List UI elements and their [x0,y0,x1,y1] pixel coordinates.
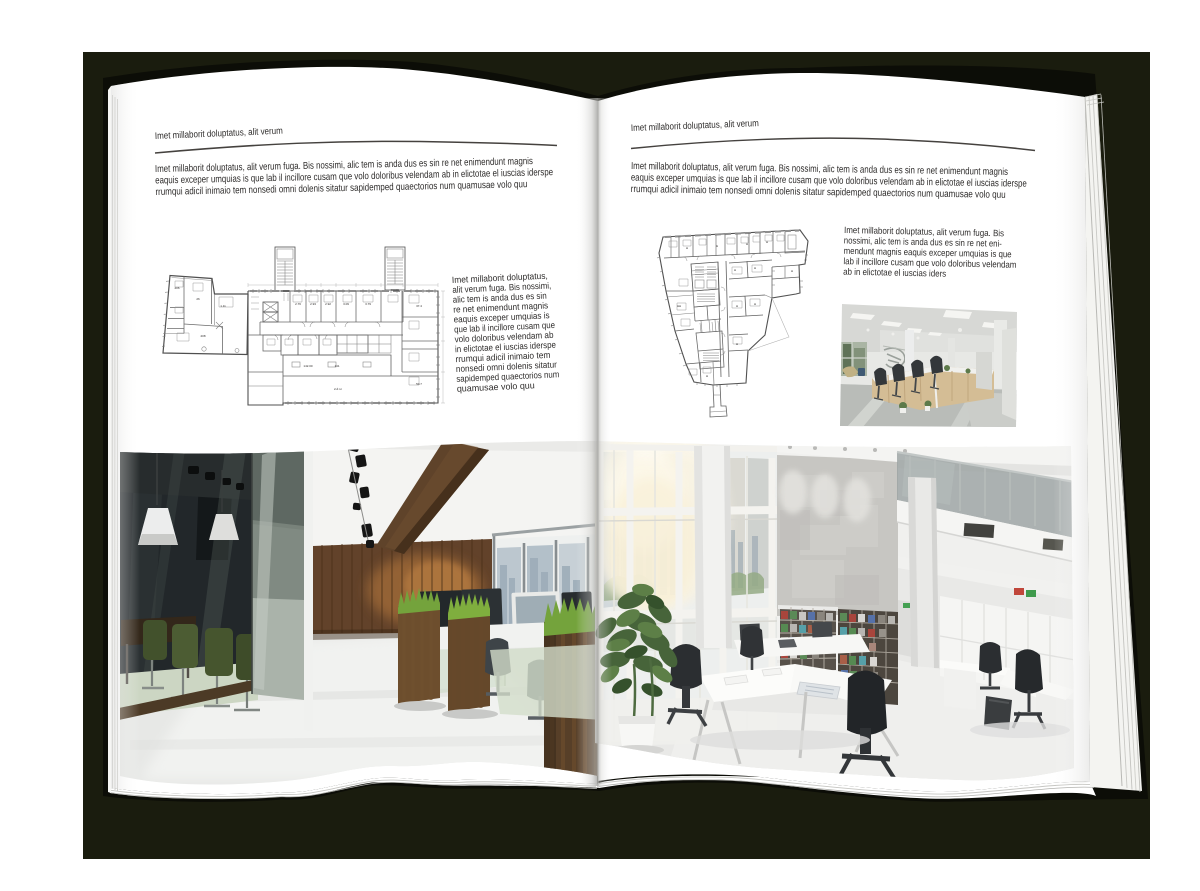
svg-text:26: 26 [196,297,200,301]
svg-text:141: 141 [334,364,339,368]
svg-text:142.00: 142.00 [303,364,313,368]
svg-text:Δ: Δ [686,246,688,250]
svg-text:Δ: Δ [746,242,748,246]
svg-text:3.09: 3.09 [343,302,349,306]
svg-text:Δ: Δ [754,302,756,306]
svg-text:37.4: 37.4 [416,304,422,308]
svg-text:1.11: 1.11 [220,304,226,308]
svg-text:Δ: Δ [754,266,756,270]
svg-text:3.79: 3.79 [365,302,371,306]
svg-text:2.76: 2.76 [295,302,301,306]
svg-text:208: 208 [200,334,205,338]
svg-text:Δ: Δ [706,374,708,378]
svg-text:Δ: Δ [736,342,738,346]
svg-text:Δ: Δ [736,304,738,308]
svg-text:Δ: Δ [734,268,736,272]
svg-text:Δ: Δ [716,244,718,248]
svg-text:206: 206 [174,286,179,290]
svg-text:2-й эт: 2-й эт [334,387,343,391]
svg-text:ΔΔ: ΔΔ [677,304,681,308]
svg-text:2.92: 2.92 [325,302,331,306]
svg-text:2.93: 2.93 [310,302,316,306]
svg-text:Δ: Δ [766,240,768,244]
svg-text:50.7: 50.7 [416,382,422,386]
svg-text:Δ: Δ [791,269,793,273]
